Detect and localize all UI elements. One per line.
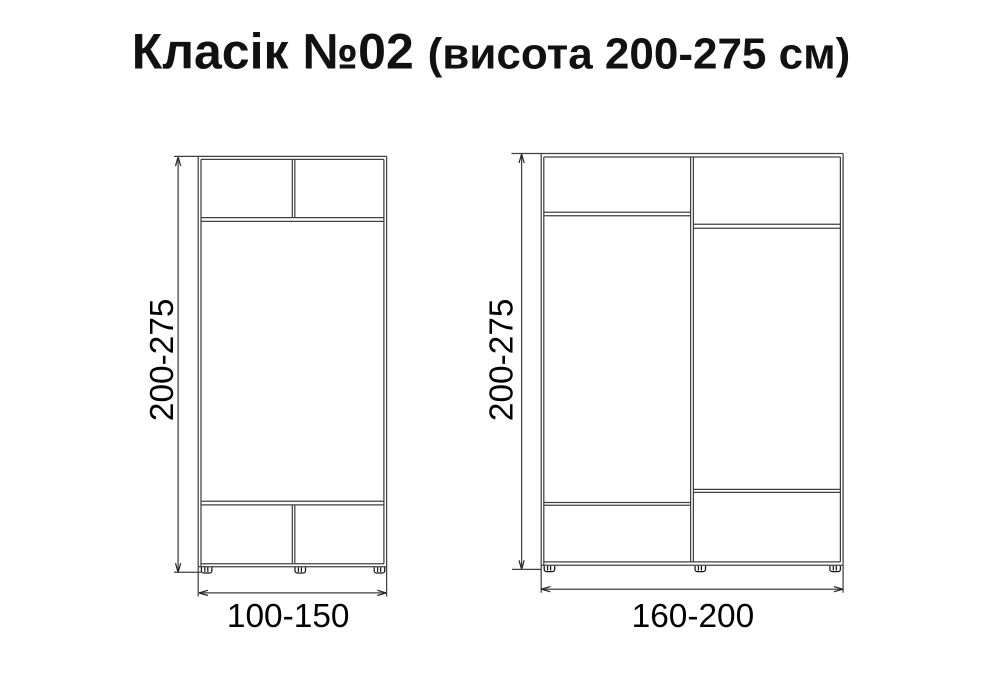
svg-text:200-275: 200-275	[484, 299, 521, 422]
svg-text:100-150: 100-150	[227, 598, 350, 635]
svg-text:160-200: 160-200	[632, 598, 755, 635]
svg-text:200-275: 200-275	[144, 299, 181, 422]
svg-text:Класік №02 (висота 200-275 см): Класік №02 (висота 200-275 см)	[132, 24, 851, 80]
